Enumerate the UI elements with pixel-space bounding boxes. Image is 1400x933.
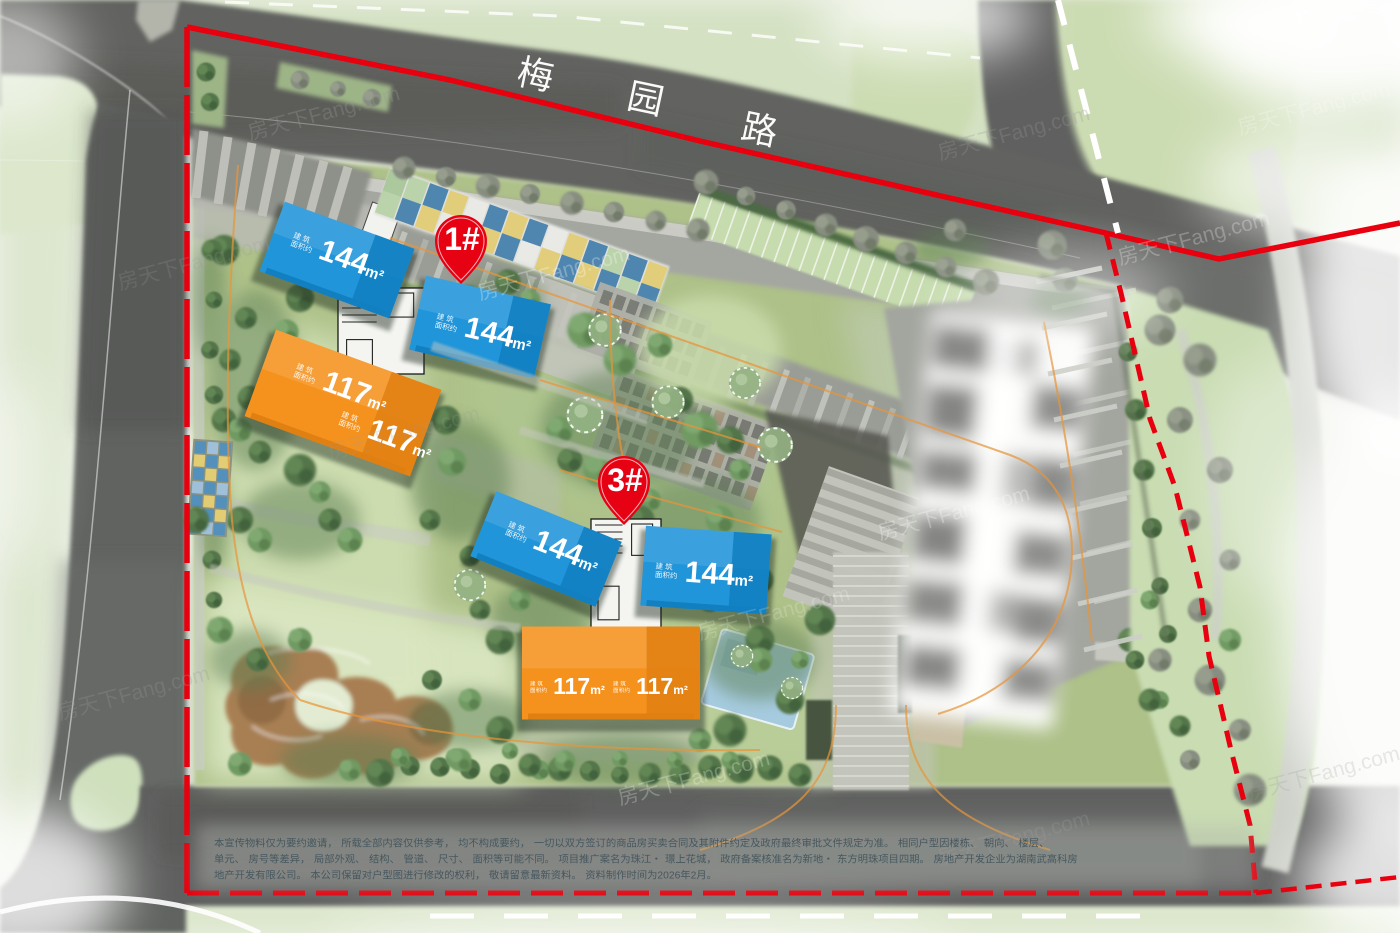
svg-text:1#: 1# xyxy=(444,221,480,257)
svg-text:3#: 3# xyxy=(607,462,643,498)
svg-text:2026: 2026 xyxy=(657,871,680,882)
svg-text:2: 2 xyxy=(691,871,697,882)
